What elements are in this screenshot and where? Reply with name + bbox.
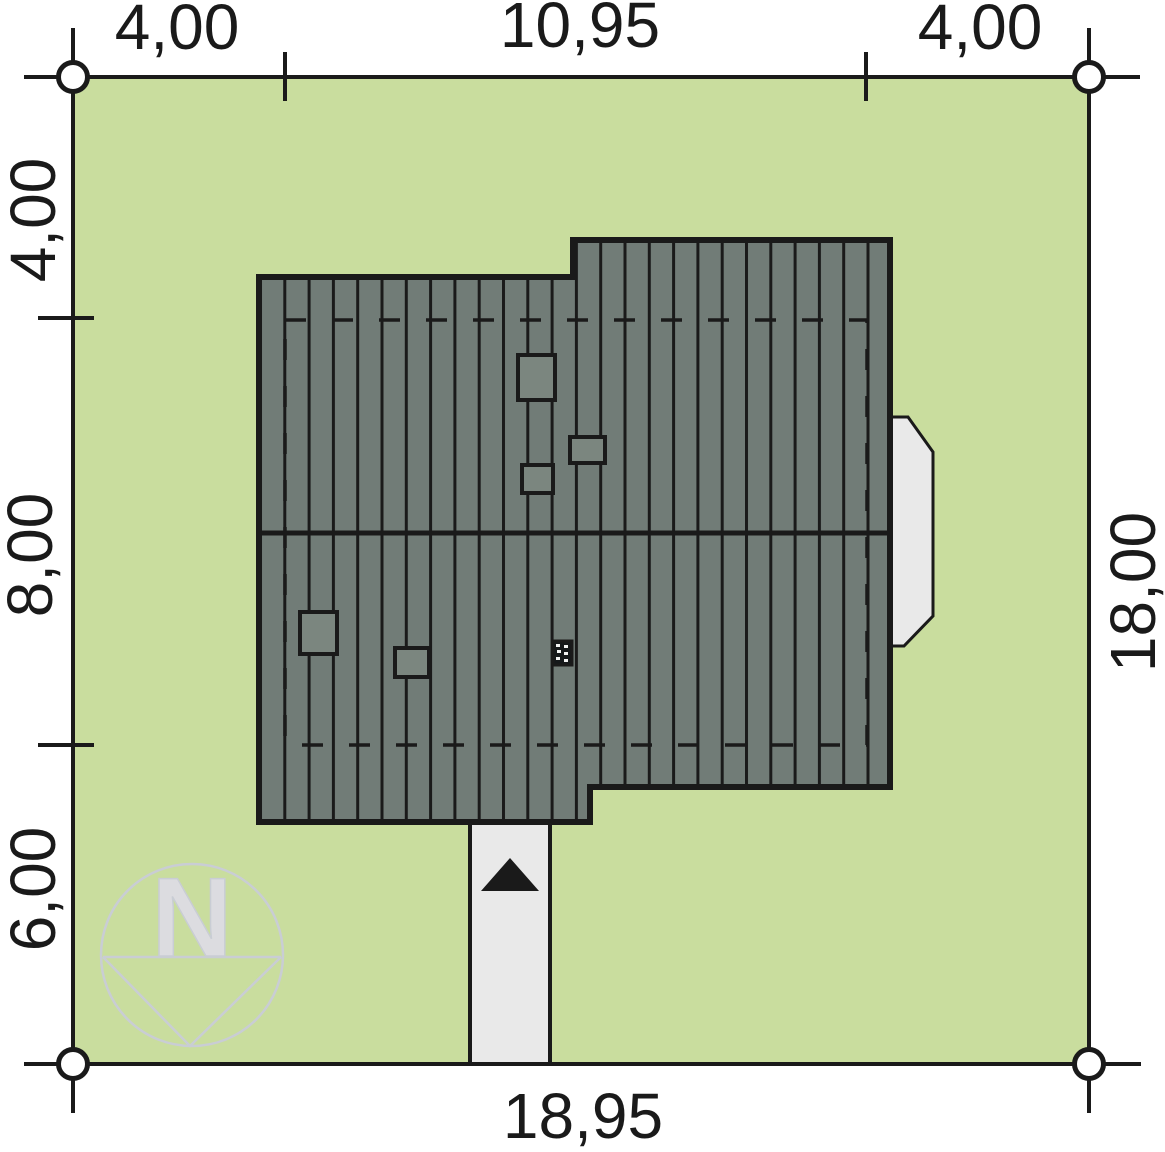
corner-marker-top-left: [24, 28, 88, 92]
corner-marker-top-right: [1075, 28, 1141, 92]
chimney-2: [570, 437, 605, 463]
dimension-label-left-lower: 6,00: [1, 827, 65, 952]
dimension-label-top-center: 10,95: [500, 0, 660, 57]
chimney-1: [518, 355, 555, 400]
chimney-5: [395, 648, 429, 677]
corner-marker-bottom-right: [1075, 1050, 1142, 1114]
dimension-label-right: 18,00: [1101, 512, 1165, 672]
dimension-label-top-right: 4,00: [918, 0, 1043, 59]
site-plan: N: [0, 0, 1165, 1148]
dimension-label-left-upper: 4,00: [1, 158, 65, 283]
compass-letter: N: [152, 855, 233, 980]
driveway: [470, 822, 550, 1064]
survey-point-icon: [1075, 1050, 1104, 1079]
site-plan-svg: N: [0, 0, 1165, 1148]
roof-vent: [553, 641, 572, 665]
dimension-label-bottom: 18,95: [503, 1084, 663, 1148]
dimension-label-left-middle: 8,00: [0, 493, 62, 618]
roof: [259, 240, 890, 822]
survey-point-icon: [59, 63, 88, 92]
chimney-4: [300, 612, 337, 654]
survey-point-icon: [59, 1050, 88, 1079]
corner-marker-bottom-left: [24, 1050, 88, 1114]
bay-window: [890, 417, 933, 646]
survey-point-icon: [1075, 63, 1104, 92]
chimney-3: [522, 465, 553, 493]
dimension-label-top-left: 4,00: [115, 0, 240, 59]
